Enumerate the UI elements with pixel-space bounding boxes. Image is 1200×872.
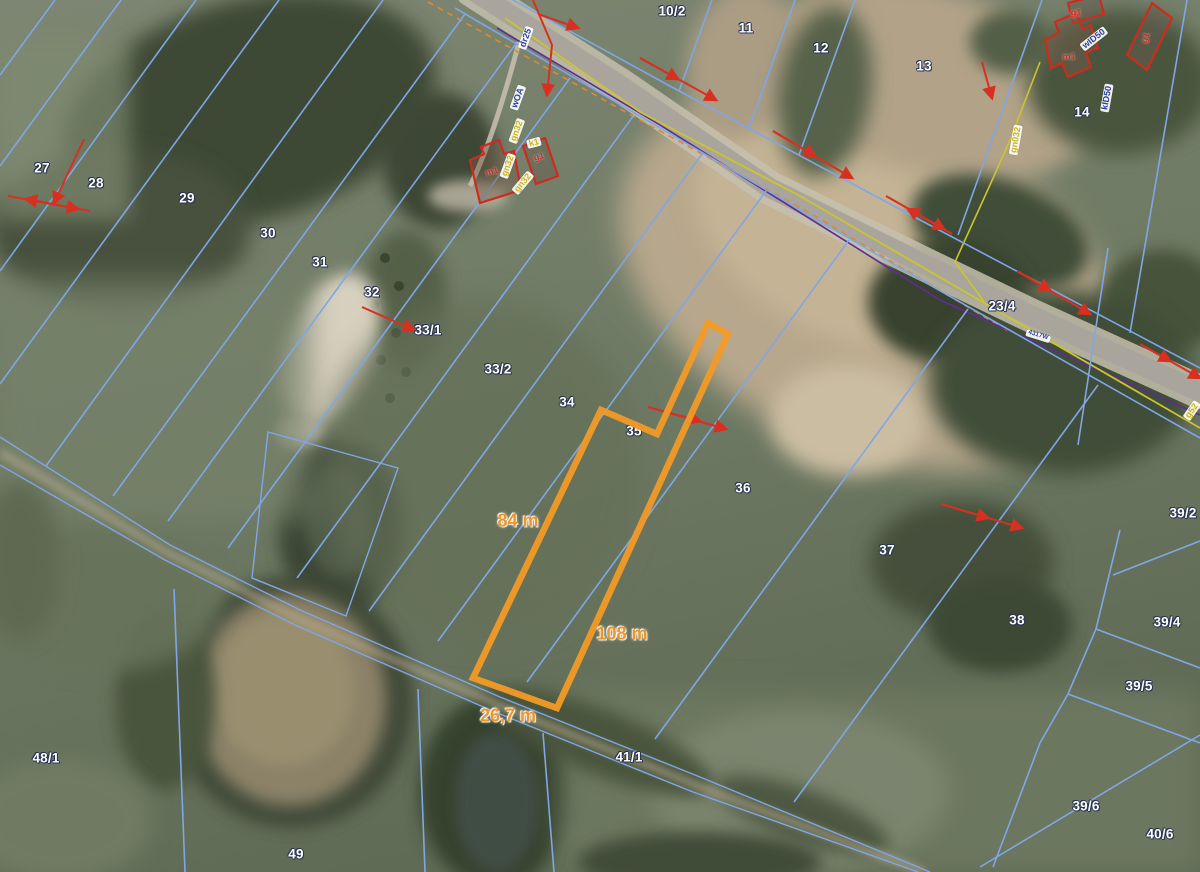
map-graphics [0,0,1200,872]
map-canvas[interactable]: 27282930313233/133/2343510/21112131423/4… [0,0,1200,872]
